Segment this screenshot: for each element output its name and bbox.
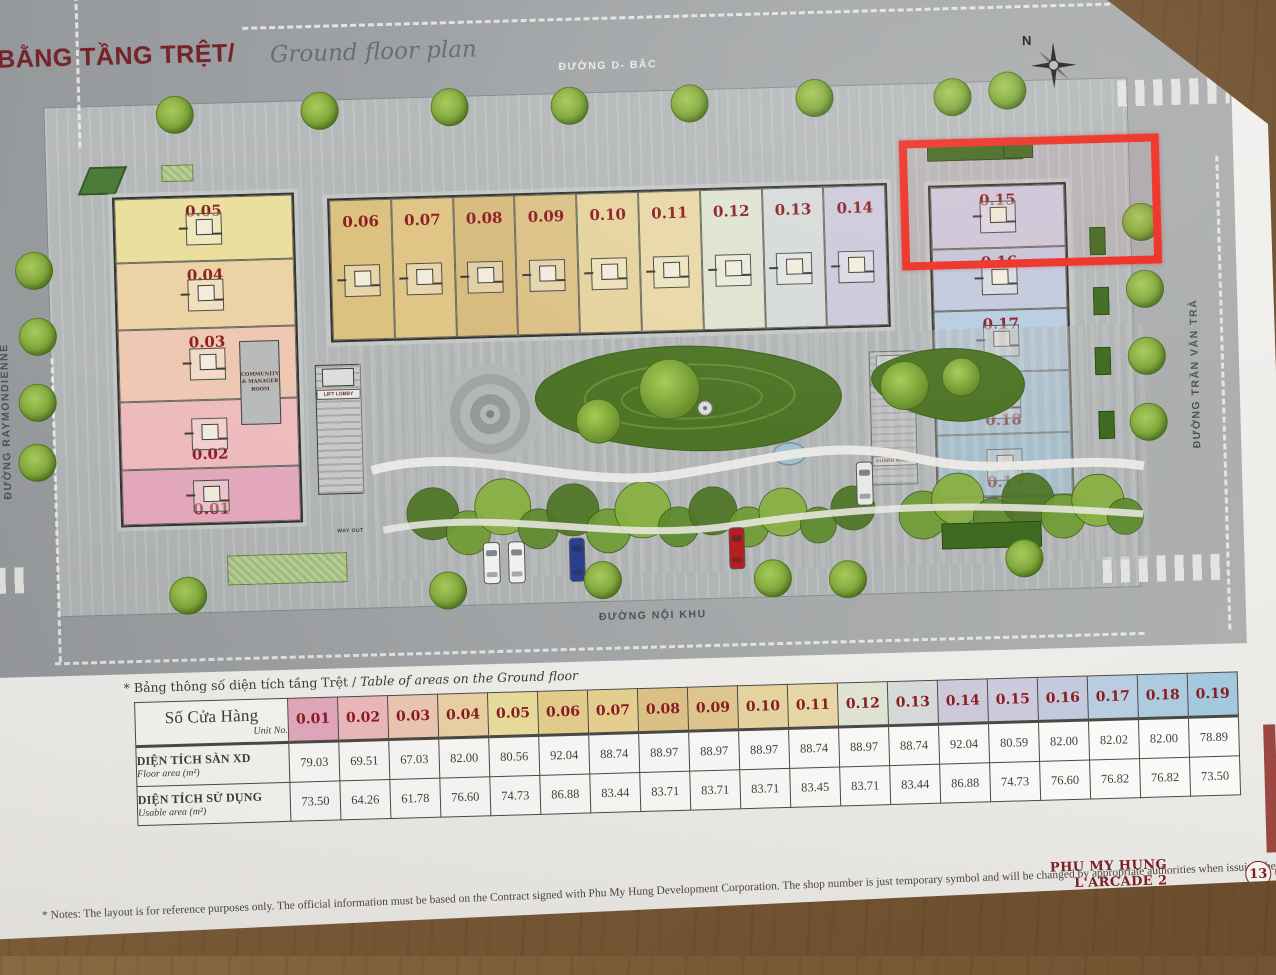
tree	[1127, 336, 1166, 375]
stair-core	[185, 213, 222, 246]
stair-core	[406, 262, 443, 295]
crosswalk-left	[0, 567, 27, 594]
car-white-2	[508, 541, 526, 583]
hedge-top-left	[161, 164, 193, 182]
usable-area-0.06: 86.88	[540, 774, 591, 814]
stair-core	[653, 256, 690, 289]
lift-shaft	[322, 368, 354, 387]
usable-area-label: DIỆN TÍCH SỬ DỤNG Usable area (m²)	[137, 782, 291, 825]
community-manager-room: COMMUNITY & MANAGER ROOM	[239, 340, 281, 425]
plan-unit-0.01: 0.01	[122, 465, 301, 525]
unit-header-0.11: 0.11	[787, 683, 838, 728]
plan-unit-0.04: 0.04	[116, 259, 296, 331]
floor-area-0.07: 88.74	[589, 733, 640, 774]
street-label-bottom: ĐƯỜNG NỘI KHU	[599, 608, 707, 623]
usable-area-0.01: 73.50	[290, 781, 341, 821]
boundary-dash-top	[242, 0, 1227, 30]
crosswalk-top-right	[1117, 77, 1230, 106]
floor-area-0.12: 88.97	[839, 726, 890, 767]
unit-header-0.07: 0.07	[587, 689, 638, 734]
boundary-dash-bottom	[55, 632, 1145, 665]
unit-header-0.08: 0.08	[637, 687, 688, 732]
floor-area-0.09: 88.97	[689, 730, 740, 771]
unit-header-0.09: 0.09	[687, 686, 738, 731]
planter	[1098, 411, 1115, 439]
car-white-3	[856, 461, 874, 505]
usable-area-0.03: 61.78	[390, 778, 441, 818]
floor-area-0.19: 78.89	[1188, 716, 1239, 757]
street-label-right: ĐƯỜNG TRẦN VĂN TRÀ	[1187, 299, 1203, 449]
floor-area-0.14: 92.04	[938, 723, 989, 764]
unit-header-0.17: 0.17	[1087, 675, 1138, 720]
unit-header-0.13: 0.13	[887, 680, 938, 725]
unit-header-0.01: 0.01	[288, 697, 339, 742]
highlight-rectangle-units-15-16	[899, 133, 1163, 270]
unit-label-0.11: 0.11	[639, 203, 699, 223]
usable-area-0.18: 76.82	[1140, 757, 1191, 797]
plan-unit-0.11: 0.11	[638, 190, 704, 332]
plan-title-en: Ground floor plan	[270, 36, 477, 68]
unit-header-0.18: 0.18	[1137, 673, 1188, 718]
unit-no-header: Số Cửa Hàng Unit No.	[135, 698, 289, 746]
usable-area-0.04: 76.60	[440, 777, 491, 817]
car-red	[728, 527, 745, 569]
unit-header-0.03: 0.03	[387, 694, 438, 739]
floor-area-0.03: 67.03	[389, 738, 440, 779]
usable-area-0.05: 74.73	[490, 775, 541, 815]
site-plan-panel: MẶT BẰNG TẦNG TRỆT/ Ground floor plan ĐƯ…	[0, 0, 1247, 679]
plan-title-vi: MẶT BẰNG TẦNG TRỆT/	[0, 39, 236, 76]
stair-core	[191, 417, 228, 450]
tree	[14, 251, 53, 290]
crosswalk-right-upper	[1224, 30, 1247, 89]
unit-header-0.10: 0.10	[737, 684, 788, 729]
unit-header-0.05: 0.05	[487, 691, 538, 736]
floor-area-0.06: 92.04	[539, 734, 590, 775]
usable-area-0.15: 74.73	[990, 761, 1041, 801]
plan-unit-0.07: 0.07	[391, 197, 457, 339]
stair-core	[838, 250, 875, 283]
unit-header-0.19: 0.19	[1187, 672, 1238, 717]
north-arrow: N	[1028, 40, 1079, 91]
usable-area-0.17: 76.82	[1090, 759, 1141, 799]
unit-header-0.16: 0.16	[1037, 676, 1088, 721]
floor-area-0.17: 82.02	[1088, 719, 1139, 760]
floor-area-0.13: 88.74	[889, 724, 940, 765]
usable-area-0.14: 86.88	[940, 763, 991, 803]
usable-area-0.16: 76.60	[1040, 760, 1091, 800]
plan-unit-0.08: 0.08	[453, 195, 519, 337]
unit-label-0.14: 0.14	[825, 198, 885, 218]
unit-label-0.09: 0.09	[516, 207, 576, 227]
floor-area-0.08: 88.97	[639, 731, 690, 772]
notes-text: * Notes: The layout is for reference pur…	[42, 864, 1192, 922]
brand-line2: L'ARCADE 2	[1050, 874, 1168, 894]
stair-core	[467, 261, 504, 294]
brand-footer: PHU MY HUNG L'ARCADE 2	[1050, 857, 1168, 893]
usable-area-0.19: 73.50	[1190, 756, 1241, 796]
hedge-bottom-left	[227, 552, 348, 585]
photographed-brochure-page: { "page": { "title_vi": "MẶT BẰNG TẦNG T…	[0, 0, 1276, 956]
unit-label-0.08: 0.08	[454, 208, 514, 228]
page-number-badge: 13	[1245, 860, 1272, 887]
tree	[1125, 269, 1164, 308]
plan-unit-0.12: 0.12	[700, 188, 766, 330]
floor-area-0.15: 80.59	[988, 721, 1039, 762]
floor-area-label: DIỆN TÍCH SÀN XD Floor area (m²)	[136, 742, 290, 786]
stair-core	[714, 254, 751, 287]
stair-core	[193, 479, 230, 512]
way-out-label: WAY OUT	[337, 528, 363, 535]
edge-red-bar	[1263, 724, 1276, 852]
usable-area-0.09: 83.71	[690, 770, 741, 810]
usable-area-0.12: 83.71	[840, 766, 891, 806]
floor-area-0.05: 80.56	[489, 735, 540, 776]
stair-core	[187, 278, 224, 311]
plan-unit-0.14: 0.14	[823, 185, 889, 327]
unit-header-0.06: 0.06	[537, 690, 588, 735]
unit-header-0.12: 0.12	[837, 682, 888, 727]
unit-label-0.07: 0.07	[392, 210, 452, 230]
usable-area-0.07: 83.44	[590, 773, 641, 813]
tree	[18, 443, 57, 482]
tree	[1129, 402, 1168, 441]
unit-label-0.06: 0.06	[330, 212, 390, 232]
floor-area-0.01: 79.03	[289, 741, 340, 782]
plan-unit-0.10: 0.10	[576, 192, 642, 334]
plan-unit-0.09: 0.09	[514, 194, 580, 336]
north-letter: N	[1022, 33, 1032, 48]
usable-area-0.10: 83.71	[740, 768, 791, 808]
unit-header-0.02: 0.02	[337, 696, 388, 741]
street-label-left: ĐƯỜNG RAYMONDIENNE	[0, 343, 14, 500]
lift-lobby-label-left: LIFT LOBBY	[316, 389, 360, 400]
unit-label-0.10: 0.10	[578, 205, 638, 225]
usable-area-0.11: 83.45	[790, 767, 841, 807]
floor-area-0.10: 88.97	[739, 728, 790, 769]
street-label-top: ĐƯỜNG D- BẮC	[558, 58, 657, 73]
floor-area-0.11: 88.74	[789, 727, 840, 768]
floor-area-0.16: 82.00	[1038, 720, 1089, 761]
areas-table: Số Cửa Hàng Unit No. 0.010.020.030.040.0…	[134, 671, 1241, 826]
floor-area-0.02: 69.51	[339, 740, 390, 781]
unit-header-0.14: 0.14	[937, 679, 988, 724]
usable-area-0.08: 83.71	[640, 771, 691, 811]
car-white-1	[483, 542, 501, 584]
unit-label-0.12: 0.12	[701, 201, 761, 221]
floor-area-0.18: 82.00	[1138, 717, 1189, 758]
page-content: MẶT BẰNG TẦNG TRỆT/ Ground floor plan ĐƯ…	[0, 0, 1276, 974]
floor-area-0.04: 82.00	[439, 737, 490, 778]
paper-sheet: MẶT BẰNG TẦNG TRỆT/ Ground floor plan ĐƯ…	[0, 0, 1276, 956]
usable-area-0.02: 64.26	[340, 780, 391, 820]
table-caption-vi: * Bảng thông số diện tích tầng Trệt /	[123, 674, 360, 696]
stair-core	[776, 252, 813, 285]
plan-unit-0.06: 0.06	[329, 199, 395, 341]
plan-unit-0.13: 0.13	[762, 187, 828, 329]
unit-label-0.13: 0.13	[763, 200, 823, 220]
unit-header-0.15: 0.15	[987, 677, 1038, 722]
planter	[1093, 287, 1110, 315]
unit-header-0.04: 0.04	[437, 693, 488, 738]
stair-core	[591, 257, 628, 290]
stair-core	[189, 347, 226, 380]
building-block-top: 0.060.070.080.090.100.110.120.130.14	[329, 185, 889, 340]
planter	[1095, 347, 1112, 375]
stair-core	[529, 259, 566, 292]
lift-tower-left: LIFT LOBBY	[315, 364, 365, 495]
plan-unit-0.05: 0.05	[114, 195, 294, 264]
table-caption-en: Table of areas on the Ground floor	[360, 668, 578, 689]
stair-core	[344, 264, 381, 297]
usable-area-0.13: 83.44	[890, 764, 941, 804]
